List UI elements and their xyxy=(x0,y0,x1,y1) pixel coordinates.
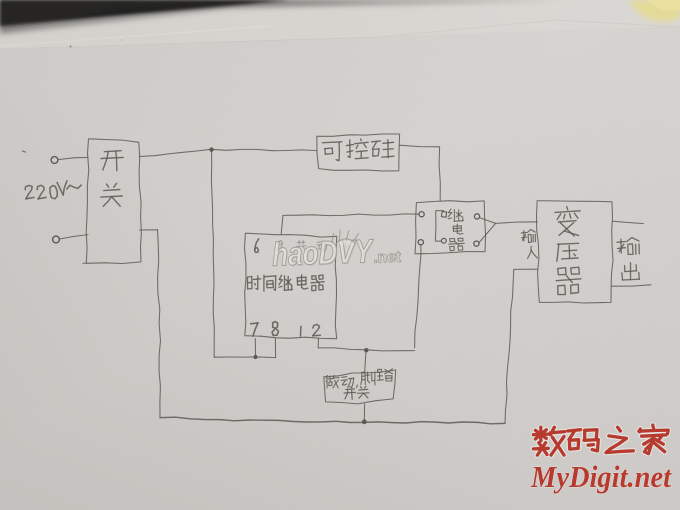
svg-text:MyDigit.net: MyDigit.net xyxy=(530,459,672,494)
svg-text:haoDVY: haoDVY xyxy=(271,232,375,273)
svg-text:.net: .net xyxy=(373,249,401,267)
